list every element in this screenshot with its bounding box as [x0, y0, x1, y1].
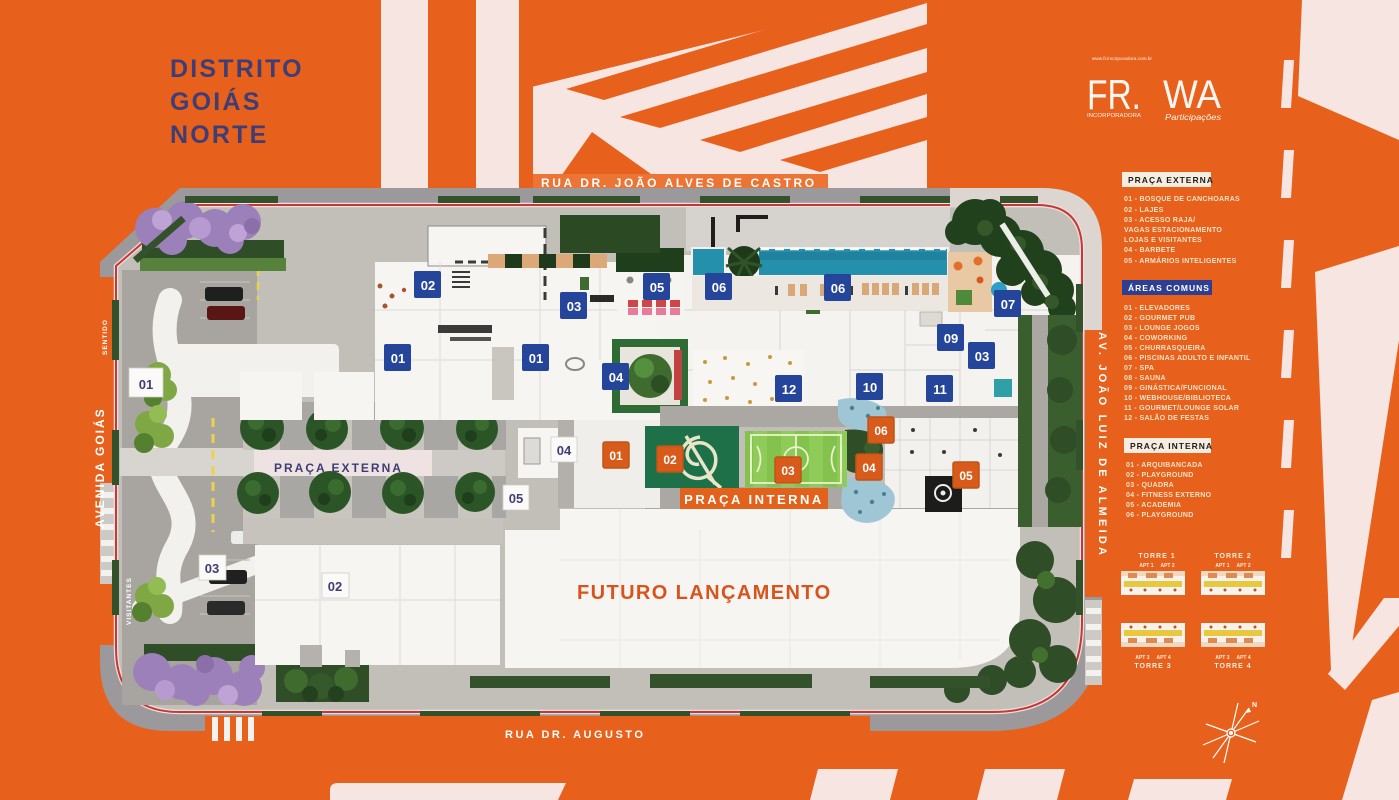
svg-text:05 - ACADEMIA: 05 - ACADEMIA [1126, 502, 1181, 509]
svg-text:01 - ELEVADORES: 01 - ELEVADORES [1124, 305, 1190, 312]
svg-text:01 - BOSQUE DE CANCHOARAS: 01 - BOSQUE DE CANCHOARAS [1124, 196, 1240, 203]
svg-text:TORRE 3: TORRE 3 [1134, 663, 1171, 670]
svg-text:APT 3 APT 4: APT 3 APT 4 [1215, 655, 1251, 661]
svg-text:TORRE 2: TORRE 2 [1214, 553, 1251, 560]
svg-text:GOIÁS: GOIÁS [170, 87, 262, 116]
svg-text:12: 12 [782, 382, 796, 397]
svg-text:VAGAS ESTACIONAMENTO: VAGAS ESTACIONAMENTO [1124, 227, 1222, 234]
svg-text:03: 03 [567, 299, 581, 314]
svg-text:06: 06 [874, 424, 888, 438]
svg-text:03: 03 [781, 464, 795, 478]
svg-text:06: 06 [712, 280, 726, 295]
svg-text:11: 11 [933, 382, 947, 397]
svg-text:RUA DR. JOÃO ALVES DE CASTRO: RUA DR. JOÃO ALVES DE CASTRO [541, 175, 817, 190]
svg-text:03: 03 [975, 349, 989, 364]
svg-text:ÁREAS COMUNS: ÁREAS COMUNS [1128, 283, 1210, 293]
svg-text:02 - GOURMET PUB: 02 - GOURMET PUB [1124, 315, 1195, 322]
svg-text:08 - SAUNA: 08 - SAUNA [1124, 375, 1166, 382]
svg-text:04 - FITNESS EXTERNO: 04 - FITNESS EXTERNO [1126, 492, 1212, 499]
svg-text:05 - CHURRASQUEIRA: 05 - CHURRASQUEIRA [1124, 345, 1206, 352]
svg-text:www.fr.incorporadora.com.br: www.fr.incorporadora.com.br [1092, 56, 1153, 61]
svg-text:04: 04 [609, 370, 624, 385]
svg-text:01: 01 [139, 377, 153, 392]
svg-text:05: 05 [650, 280, 664, 295]
svg-text:PRAÇA INTERNA: PRAÇA INTERNA [684, 492, 824, 507]
svg-text:10: 10 [863, 380, 877, 395]
svg-text:TORRE 4: TORRE 4 [1214, 663, 1251, 670]
svg-text:02: 02 [663, 453, 677, 467]
svg-text:02 - LAJES: 02 - LAJES [1124, 207, 1164, 214]
svg-text:NORTE: NORTE [170, 121, 269, 149]
svg-text:RUA DR. AUGUSTO: RUA DR. AUGUSTO [505, 729, 645, 741]
svg-text:SENTIDO: SENTIDO [102, 319, 109, 355]
svg-text:LOJAS E VISITANTES: LOJAS E VISITANTES [1124, 237, 1202, 244]
svg-text:AVENIDA GOIÁS: AVENIDA GOIÁS [92, 407, 107, 528]
svg-text:07: 07 [1001, 297, 1015, 312]
svg-text:04: 04 [862, 461, 876, 475]
svg-text:06 - PLAYGROUND: 06 - PLAYGROUND [1126, 512, 1194, 519]
svg-text:02: 02 [328, 579, 342, 594]
svg-text:03 - QUADRA: 03 - QUADRA [1126, 482, 1174, 489]
svg-text:DISTRITO: DISTRITO [170, 55, 304, 83]
svg-text:02: 02 [421, 278, 435, 293]
svg-text:04 - BARBETE: 04 - BARBETE [1124, 247, 1175, 254]
svg-text:PRAÇA EXTERNA: PRAÇA EXTERNA [274, 461, 403, 475]
svg-text:01: 01 [529, 351, 543, 366]
svg-text:PRAÇA INTERNA: PRAÇA INTERNA [1130, 441, 1213, 451]
svg-text:FR.: FR. [1087, 71, 1141, 118]
svg-text:03 - ACESSO RAJA/: 03 - ACESSO RAJA/ [1124, 217, 1195, 224]
svg-text:05: 05 [509, 491, 523, 506]
svg-text:07 - SPA: 07 - SPA [1124, 365, 1154, 372]
svg-text:VISITANTES: VISITANTES [126, 577, 133, 625]
svg-text:09 - GINÁSTICA/FUNCIONAL: 09 - GINÁSTICA/FUNCIONAL [1124, 383, 1227, 392]
svg-text:01: 01 [391, 351, 405, 366]
svg-text:WA: WA [1163, 73, 1221, 117]
svg-text:02 - PLAYGROUND: 02 - PLAYGROUND [1126, 472, 1194, 479]
svg-text:03 - LOUNGE JOGOS: 03 - LOUNGE JOGOS [1124, 325, 1200, 332]
svg-text:Participações: Participações [1165, 112, 1222, 122]
svg-text:04: 04 [557, 443, 572, 458]
svg-text:01: 01 [609, 449, 623, 463]
svg-text:APT 3 APT 4: APT 3 APT 4 [1135, 655, 1171, 661]
svg-text:APT 1 APT 2: APT 1 APT 2 [1139, 563, 1175, 569]
svg-text:06 - PISCINAS ADULTO E INFANTI: 06 - PISCINAS ADULTO E INFANTIL [1124, 355, 1251, 362]
svg-text:04 - COWORKING: 04 - COWORKING [1124, 335, 1188, 342]
svg-text:06: 06 [831, 281, 845, 296]
svg-text:01 - ARQUIBANCADA: 01 - ARQUIBANCADA [1126, 462, 1203, 469]
svg-text:FUTURO LANÇAMENTO: FUTURO LANÇAMENTO [577, 582, 832, 604]
svg-text:PRAÇA EXTERNA: PRAÇA EXTERNA [1128, 175, 1214, 185]
svg-text:TORRE 1: TORRE 1 [1138, 553, 1175, 560]
svg-text:N: N [1252, 702, 1257, 709]
svg-text:INCORPORADORA: INCORPORADORA [1087, 113, 1141, 119]
svg-text:09: 09 [944, 331, 958, 346]
svg-text:05 - ARMÁRIOS INTELIGENTES: 05 - ARMÁRIOS INTELIGENTES [1124, 256, 1237, 265]
svg-text:AV. JOÃO LUIZ DE ALMEIDA: AV. JOÃO LUIZ DE ALMEIDA [1096, 332, 1109, 558]
svg-text:10 - WEBHOUSE/BIBLIOTECA: 10 - WEBHOUSE/BIBLIOTECA [1124, 395, 1231, 402]
svg-text:12 - SALÃO DE FESTAS: 12 - SALÃO DE FESTAS [1124, 413, 1209, 422]
svg-text:03: 03 [205, 561, 219, 576]
svg-text:APT 1 APT 2: APT 1 APT 2 [1215, 563, 1251, 569]
svg-text:11 - GOURMET/LOUNGE SOLAR: 11 - GOURMET/LOUNGE SOLAR [1124, 405, 1239, 412]
svg-text:05: 05 [959, 469, 973, 483]
